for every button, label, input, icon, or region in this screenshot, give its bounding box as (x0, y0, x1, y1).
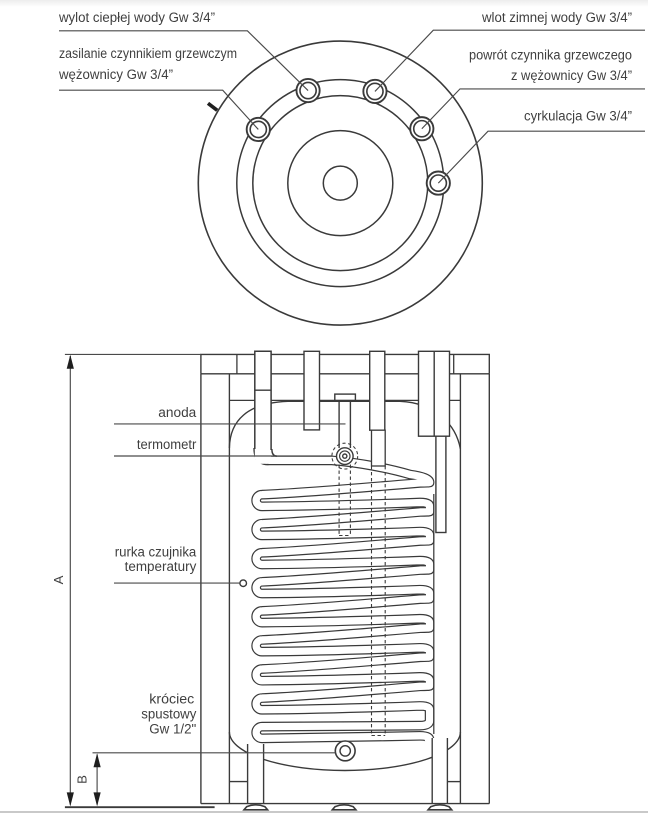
svg-text:termometr: termometr (137, 437, 197, 452)
svg-text:anoda: anoda (158, 405, 197, 420)
svg-text:wężownicy Gw 3/4”: wężownicy Gw 3/4” (58, 67, 173, 82)
svg-text:króciec: króciec (149, 692, 194, 707)
svg-text:powrót czynnika grzewczego: powrót czynnika grzewczego (469, 48, 632, 63)
svg-text:wylot ciepłej wody Gw 3/4”: wylot ciepłej wody Gw 3/4” (58, 10, 215, 25)
svg-text:zasilanie czynnikiem grzewczym: zasilanie czynnikiem grzewczym (59, 46, 237, 61)
svg-text:temperatury: temperatury (125, 559, 197, 574)
svg-text:wlot zimnej wody Gw 3/4”: wlot zimnej wody Gw 3/4” (481, 10, 632, 25)
svg-text:spustowy: spustowy (141, 706, 196, 721)
svg-text:rurka czujnika: rurka czujnika (115, 545, 197, 560)
svg-text:Gw 1/2": Gw 1/2" (149, 722, 196, 737)
svg-text:cyrkulacja Gw 3/4”: cyrkulacja Gw 3/4” (524, 109, 632, 124)
svg-text:B: B (75, 775, 90, 784)
svg-text:A: A (51, 575, 66, 584)
svg-text:z wężownicy Gw 3/4”: z wężownicy Gw 3/4” (511, 68, 632, 83)
